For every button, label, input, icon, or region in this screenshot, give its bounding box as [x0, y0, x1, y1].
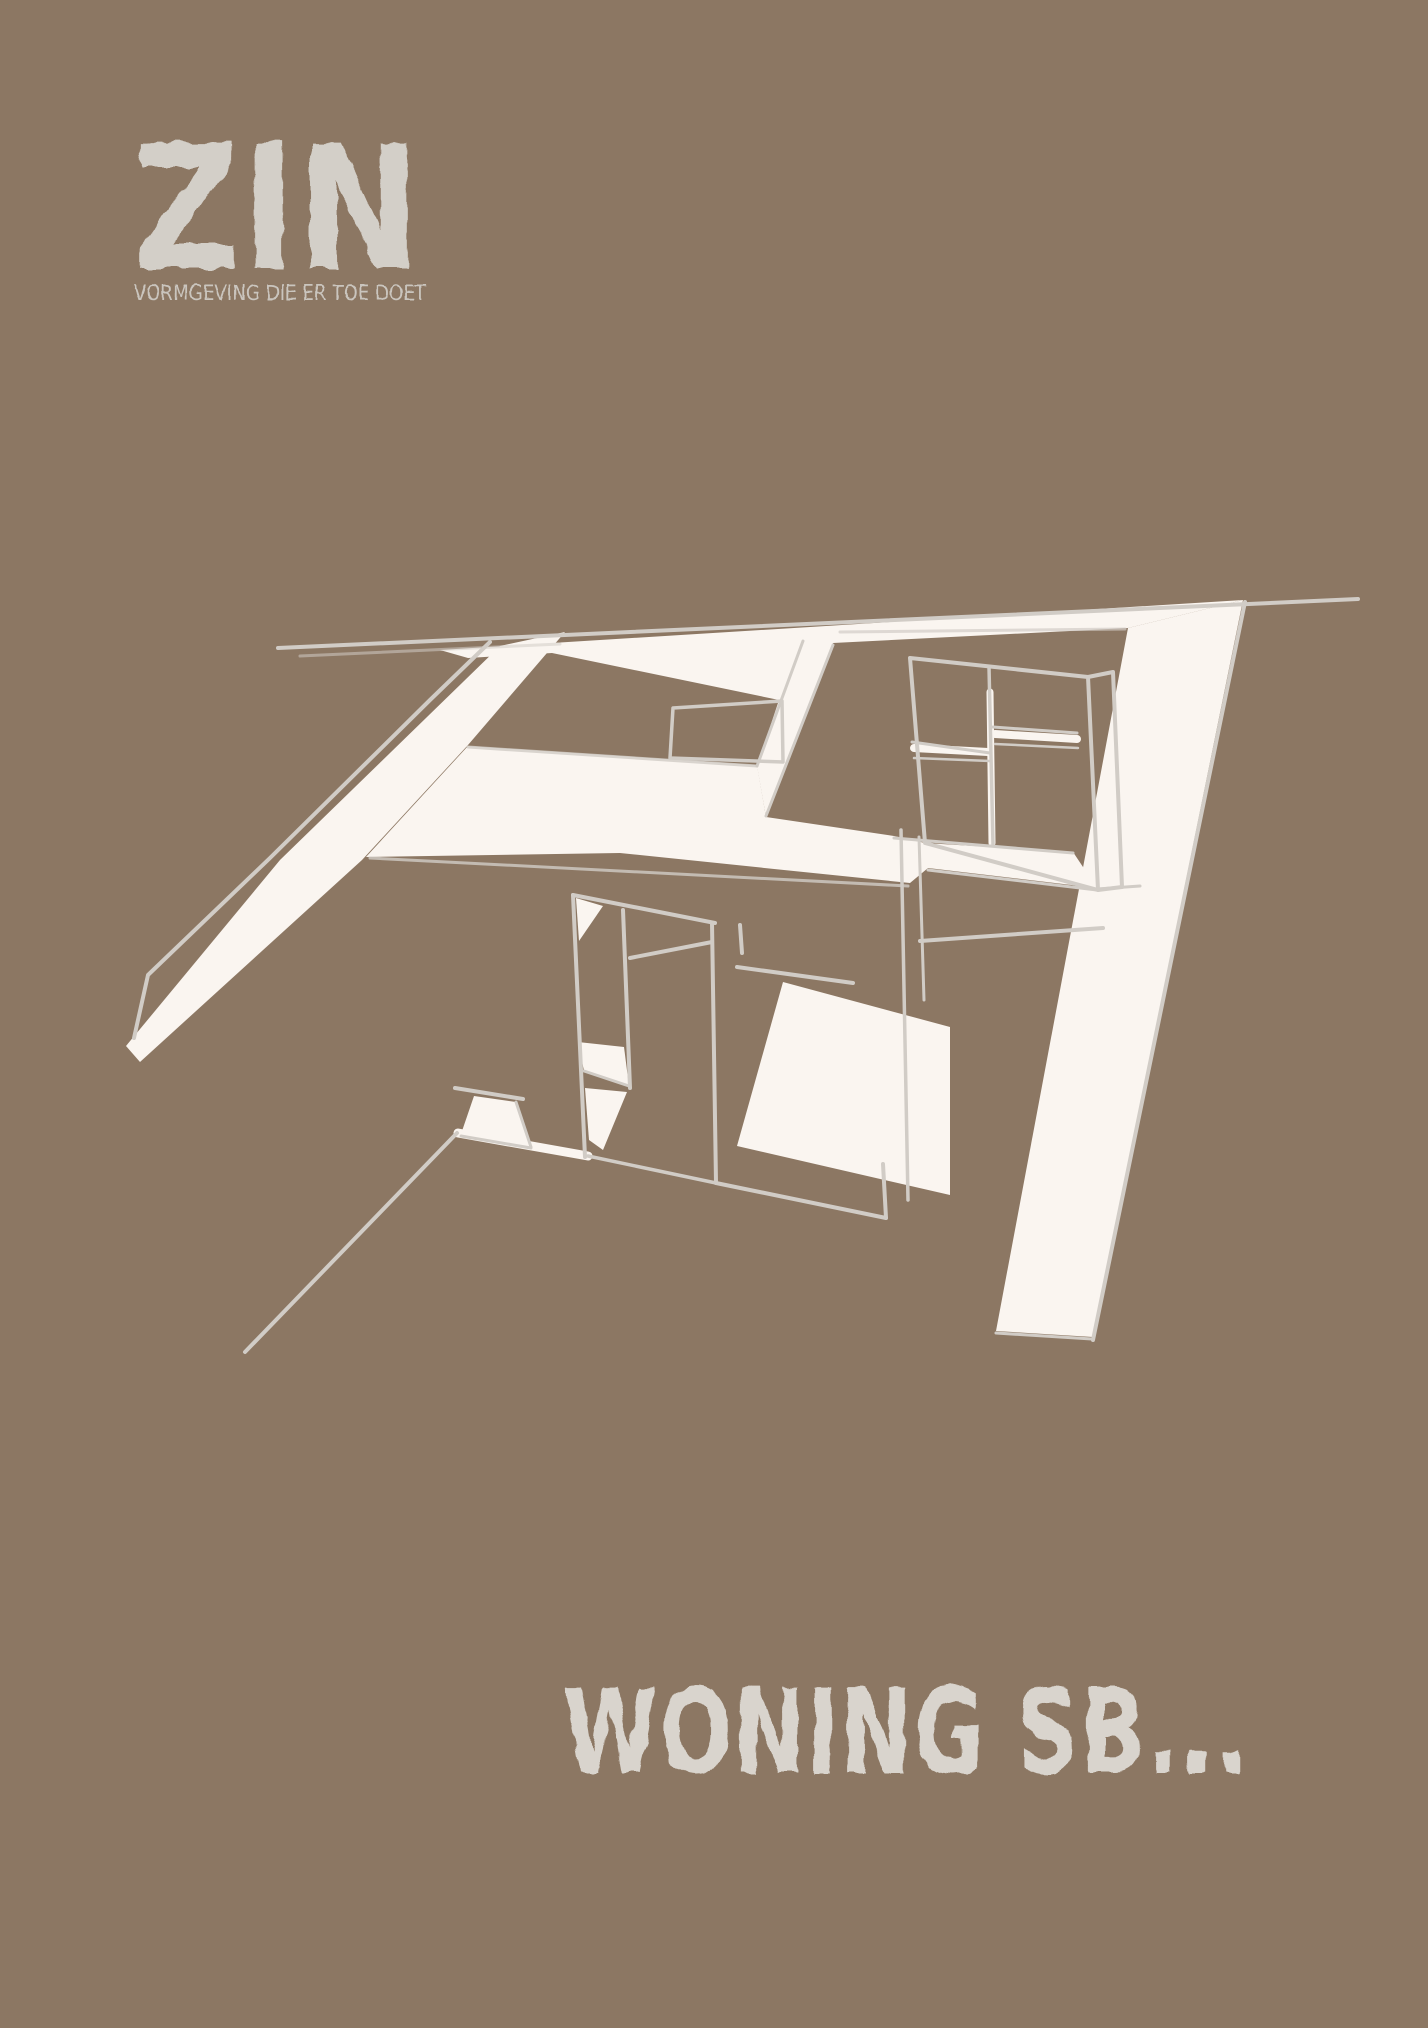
floor-perspective-line — [245, 1133, 457, 1352]
door-right-jamb — [712, 923, 716, 1183]
door-shelf-lower — [585, 1088, 627, 1150]
sketch-white-shapes — [126, 600, 1243, 1337]
door-head-wedge — [576, 898, 603, 941]
window-mullion-highlight-right — [995, 734, 1077, 739]
cover-page: ZIN VORMGEVING DIE ER TOE DOET WONING SB… — [0, 0, 1428, 2028]
right-opening-light — [737, 982, 950, 1195]
door-sill-line — [716, 1183, 886, 1218]
door-head-notch — [740, 925, 742, 953]
window-mullion-left-bottom — [914, 758, 990, 761]
logo-tagline: VORMGEVING DIE ER TOE DOET — [134, 281, 427, 306]
door-floor-line — [588, 1156, 716, 1183]
attic-interior-sketch: ZIN VORMGEVING DIE ER TOE DOET WONING SB… — [0, 0, 1428, 2028]
crossbar-and-sill — [366, 746, 1097, 888]
opening-top-line — [737, 967, 853, 983]
project-title: WONING SB... — [563, 1663, 1249, 1801]
door-head-diagonal — [630, 942, 712, 958]
window-mullion-right-bottom — [995, 744, 1078, 748]
bench-top-line — [455, 1088, 523, 1099]
zin-logo: ZIN — [133, 108, 421, 309]
door-shelf-upper — [578, 1042, 629, 1086]
right-beam — [996, 600, 1243, 1337]
